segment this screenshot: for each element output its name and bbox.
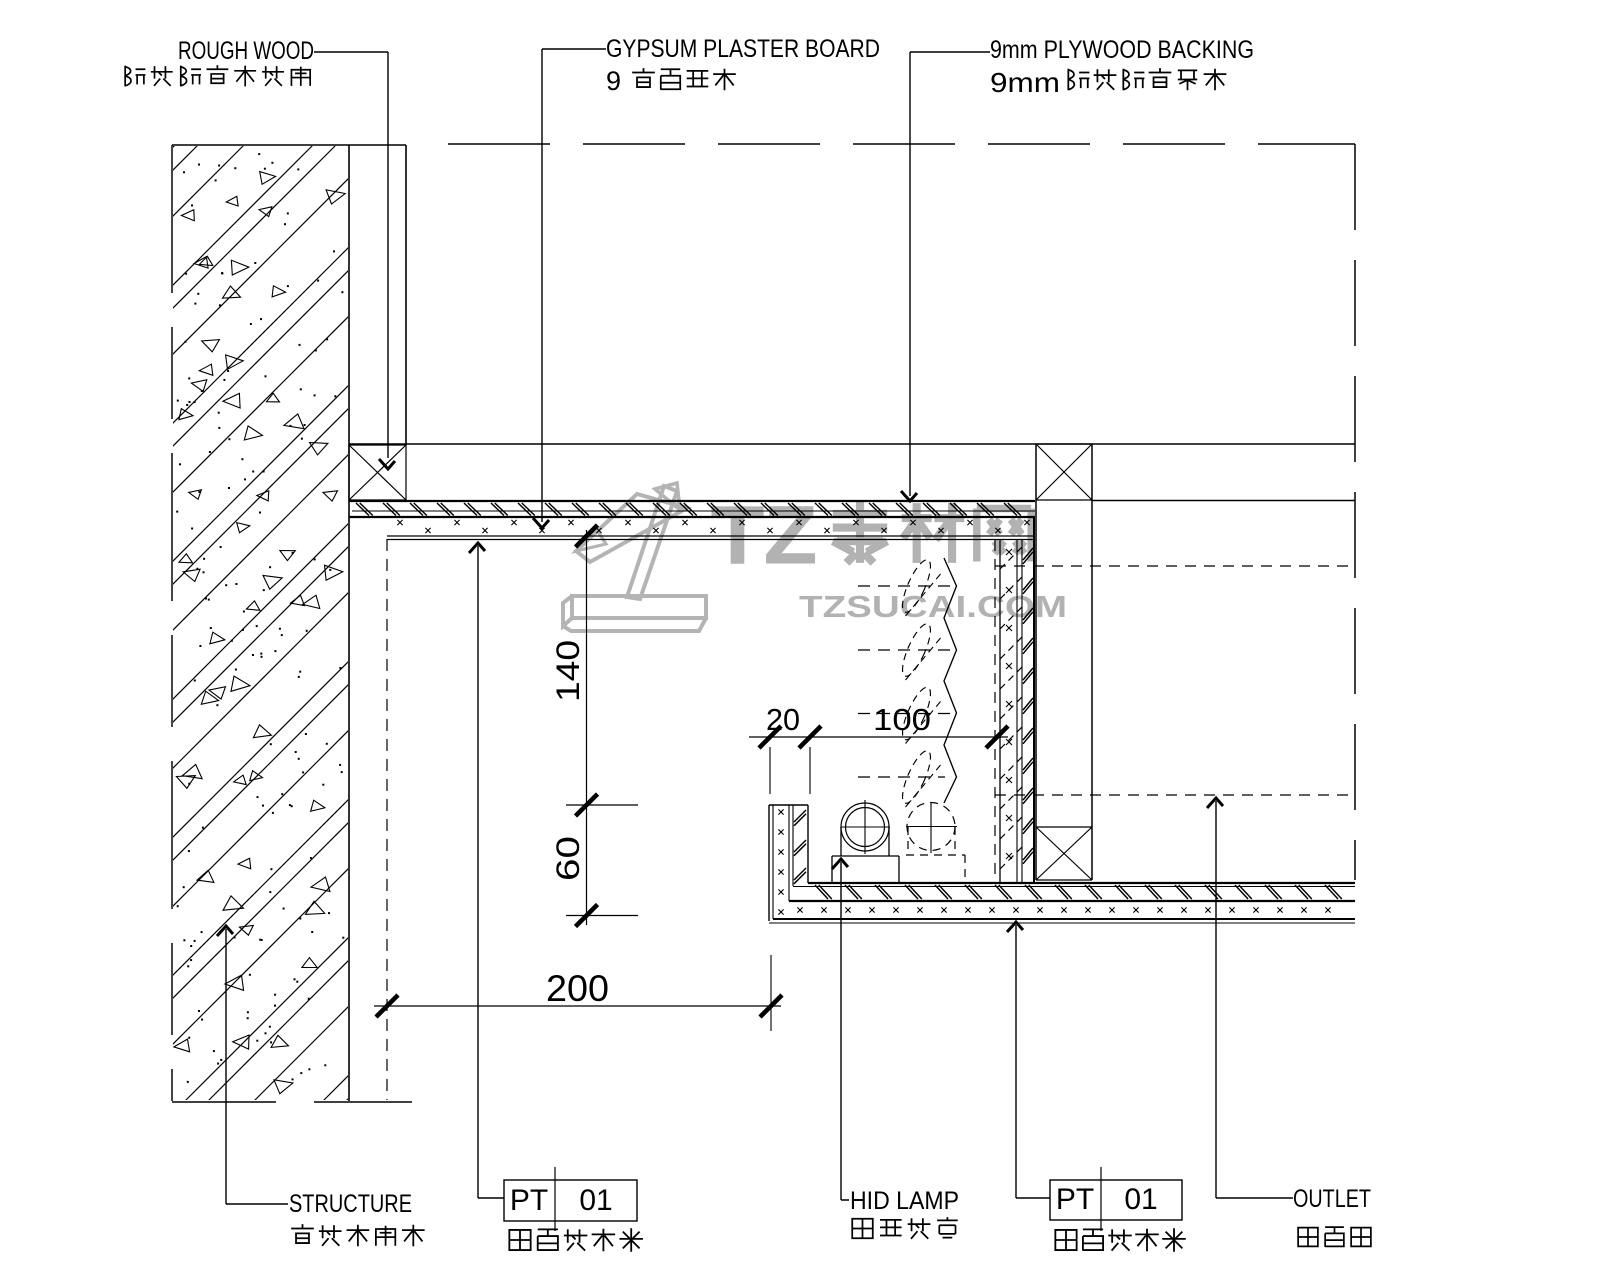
- svg-text:9: 9: [606, 66, 621, 96]
- svg-text:01: 01: [579, 1184, 612, 1217]
- svg-text:100: 100: [873, 702, 931, 737]
- svg-text:60: 60: [550, 836, 586, 881]
- svg-text:9mm: 9mm: [990, 67, 1060, 98]
- svg-text:140: 140: [550, 640, 586, 702]
- svg-text:200: 200: [546, 968, 609, 1009]
- svg-text:PT: PT: [510, 1184, 548, 1217]
- svg-text:ROUGH WOOD: ROUGH WOOD: [178, 37, 314, 65]
- svg-text:STRUCTURE: STRUCTURE: [289, 1190, 412, 1218]
- svg-text:PT: PT: [1056, 1183, 1094, 1216]
- svg-text:20: 20: [766, 702, 800, 737]
- svg-text:HID LAMP: HID LAMP: [850, 1187, 959, 1215]
- svg-text:9mm PLYWOOD BACKING: 9mm PLYWOOD BACKING: [990, 36, 1254, 64]
- svg-text:01: 01: [1124, 1183, 1157, 1216]
- svg-text:OUTLET: OUTLET: [1293, 1185, 1371, 1213]
- svg-text:GYPSUM PLASTER BOARD: GYPSUM PLASTER BOARD: [606, 35, 880, 63]
